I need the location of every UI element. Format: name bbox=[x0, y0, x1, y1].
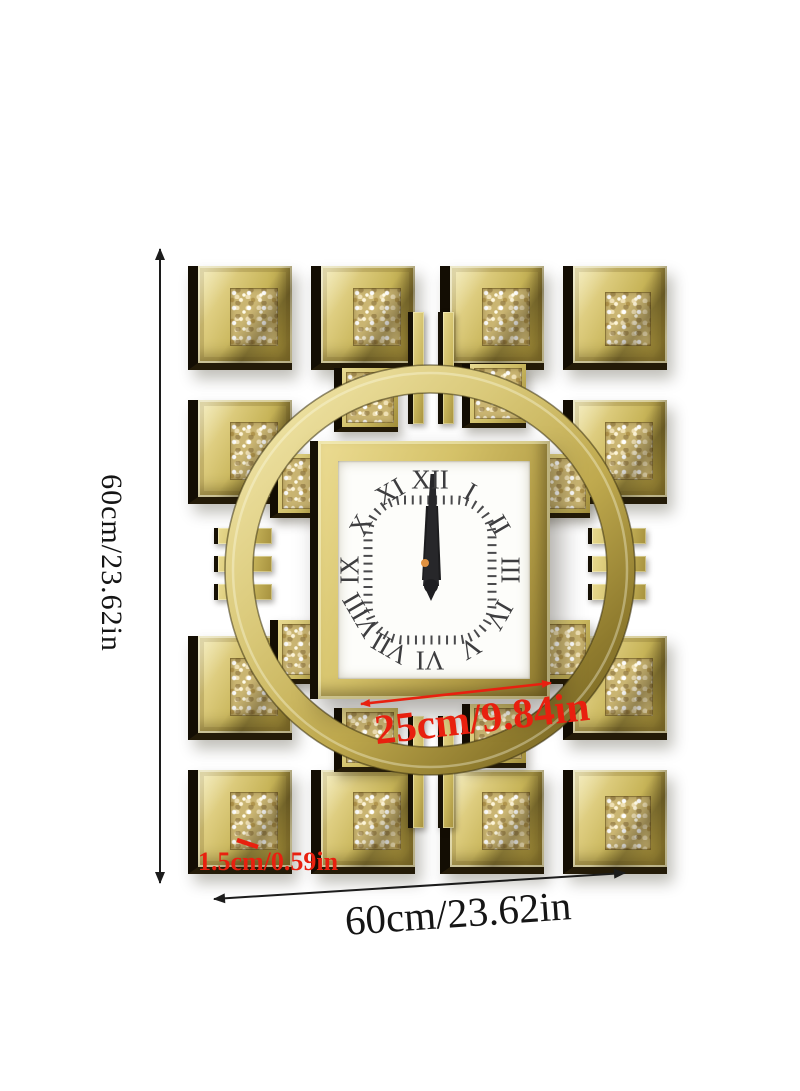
numeral-3: III bbox=[497, 557, 524, 584]
crystal-inlay bbox=[605, 422, 653, 480]
connector-bar bbox=[214, 584, 272, 600]
numeral-9: IX bbox=[337, 556, 364, 585]
crystal-inlay bbox=[353, 792, 401, 850]
mirror-block bbox=[188, 266, 292, 370]
mirror-block bbox=[440, 770, 544, 874]
height-dimension-label: 60cm/23.62in bbox=[94, 474, 128, 652]
connector-bar bbox=[588, 584, 646, 600]
mirror-block bbox=[563, 266, 667, 370]
crystal-tile bbox=[334, 368, 398, 432]
crystal-inlay bbox=[230, 792, 278, 850]
crystal-inlay bbox=[482, 792, 530, 850]
connector-bar bbox=[438, 312, 454, 424]
connector-bar bbox=[214, 556, 272, 572]
crystal-inlay bbox=[346, 372, 394, 423]
mirror-block bbox=[440, 266, 544, 370]
crystal-inlay bbox=[353, 288, 401, 346]
crystal-inlay bbox=[605, 292, 651, 346]
crystal-tile bbox=[462, 364, 526, 428]
product-dimension-diagram: XII I II III IV V VI VII VIII IX X XI 60… bbox=[0, 0, 800, 1091]
crystal-inlay bbox=[474, 368, 522, 419]
numeral-6: VI bbox=[416, 647, 445, 674]
mirror-block bbox=[311, 266, 415, 370]
crystal-inlay bbox=[230, 288, 278, 346]
crystal-inlay bbox=[482, 288, 530, 346]
connector-bar bbox=[588, 528, 646, 544]
mirror-block bbox=[563, 770, 667, 874]
crystal-inlay bbox=[605, 796, 651, 850]
connector-bar bbox=[214, 528, 272, 544]
width-dimension-label: 60cm/23.62in bbox=[343, 881, 572, 945]
crystal-inlay bbox=[605, 658, 653, 716]
numeral-12: XII bbox=[411, 467, 448, 494]
connector-bar bbox=[588, 556, 646, 572]
connector-bar bbox=[408, 312, 424, 424]
thickness-dimension-label: 1.5cm/0.59in bbox=[198, 847, 338, 877]
